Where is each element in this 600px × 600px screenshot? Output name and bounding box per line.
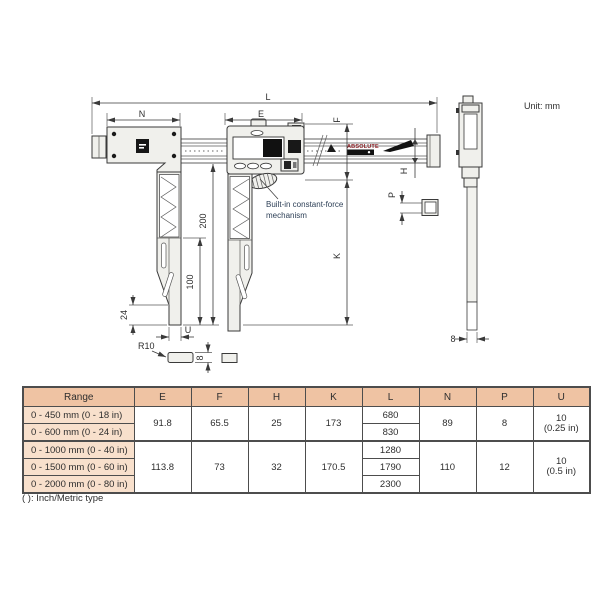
col-header-H: H [248, 387, 305, 407]
dim-label-K: K [332, 253, 342, 259]
cell-N: 89 [419, 407, 476, 442]
cell-K: 173 [305, 407, 362, 442]
dim-label-E: E [258, 109, 264, 119]
table-header-row: Range E F H K L N P U [23, 387, 590, 407]
cell-U-main: 10 [534, 414, 590, 424]
col-header-F: F [191, 387, 248, 407]
col-header-N: N [419, 387, 476, 407]
cell-U-sub: (0.25 in) [534, 424, 590, 434]
unit-label: Unit: mm [524, 101, 560, 111]
absolute-logo-text: ABSOLUTE [347, 144, 379, 150]
dim-label-F: F [332, 117, 342, 123]
dim-label-R10: R10 [138, 341, 155, 351]
table-row: 0 - 450 mm (0 - 18 in) 91.8 65.5 25 173 … [23, 407, 590, 424]
cell-L: 830 [362, 424, 419, 442]
col-header-L: L [362, 387, 419, 407]
spec-table: Range E F H K L N P U 0 - 450 mm (0 - 18… [22, 386, 591, 494]
screw-icon [112, 154, 116, 158]
dimension-24: 24 [119, 295, 168, 335]
fixed-jaw [157, 172, 181, 325]
cell-E: 113.8 [134, 441, 191, 493]
dimension-N: N [107, 109, 180, 126]
constant-force-annotation: Built-in constant-force mechanism [260, 179, 344, 220]
screw-icon [172, 132, 176, 136]
screw-icon [172, 154, 176, 158]
cell-range: 0 - 1000 mm (0 - 40 in) [23, 441, 134, 459]
annotation-line1: Built-in constant-force [266, 200, 344, 209]
cell-L: 1790 [362, 459, 419, 476]
jaw-tip-sections: R10 8 [138, 341, 237, 373]
dim-label-N: N [139, 109, 146, 119]
dim-label-U: U [185, 325, 192, 335]
cell-range: 0 - 600 mm (0 - 24 in) [23, 424, 134, 442]
beam [181, 135, 440, 167]
dim-label-L: L [265, 92, 270, 102]
technical-drawing: ABSOLUTE [0, 0, 600, 385]
moving-jaw [228, 174, 252, 331]
screw-icon [112, 132, 116, 136]
cell-P: 8 [476, 407, 533, 442]
annotation-line2: mechanism [266, 211, 307, 220]
cell-range: 0 - 450 mm (0 - 18 in) [23, 407, 134, 424]
col-header-range: Range [23, 387, 134, 407]
cell-F: 65.5 [191, 407, 248, 442]
cell-L: 1280 [362, 441, 419, 459]
function-button [261, 163, 272, 169]
col-header-E: E [134, 387, 191, 407]
dimension-U: U [156, 325, 194, 341]
cell-E: 91.8 [134, 407, 191, 442]
cell-L: 680 [362, 407, 419, 424]
cell-U: 10 (0.5 in) [533, 441, 590, 493]
dim-label-8-tip: 8 [195, 355, 205, 360]
beam-end-cap [427, 135, 440, 167]
side-view: 8 [450, 96, 489, 344]
cell-K: 170.5 [305, 441, 362, 493]
dim-label-H: H [399, 168, 409, 175]
cell-F: 73 [191, 441, 248, 493]
cell-P: 12 [476, 441, 533, 493]
function-button [235, 163, 246, 169]
brand-label-icon [136, 139, 149, 153]
dim-label-200: 200 [198, 213, 208, 228]
dim-label-100: 100 [185, 274, 195, 289]
table-row: 0 - 1000 mm (0 - 40 in) 113.8 73 32 170.… [23, 441, 590, 459]
cell-H: 32 [248, 441, 305, 493]
dim-label-24: 24 [119, 310, 129, 320]
dimension-200: 200 [183, 164, 219, 325]
dimension-P: P [387, 191, 438, 225]
catalog-page: { "unit_label": "Unit: mm", "drawing": {… [0, 0, 600, 600]
dimension-100: 100 [183, 238, 206, 325]
fixed-head [92, 127, 181, 172]
cell-L: 2300 [362, 476, 419, 494]
cell-range: 0 - 1500 mm (0 - 60 in) [23, 459, 134, 476]
cell-N: 110 [419, 441, 476, 493]
col-header-U: U [533, 387, 590, 407]
dim-label-P: P [387, 192, 397, 198]
power-button [251, 131, 263, 136]
col-header-P: P [476, 387, 533, 407]
cell-range: 0 - 2000 mm (0 - 80 in) [23, 476, 134, 494]
cell-U-sub: (0.5 in) [534, 467, 590, 477]
table-footnote: ( ): Inch/Metric type [22, 493, 103, 504]
cell-U: 10 (0.25 in) [533, 407, 590, 442]
col-header-K: K [305, 387, 362, 407]
cell-H: 25 [248, 407, 305, 442]
function-button [248, 163, 259, 169]
dim-label-8-side: 8 [450, 334, 455, 344]
